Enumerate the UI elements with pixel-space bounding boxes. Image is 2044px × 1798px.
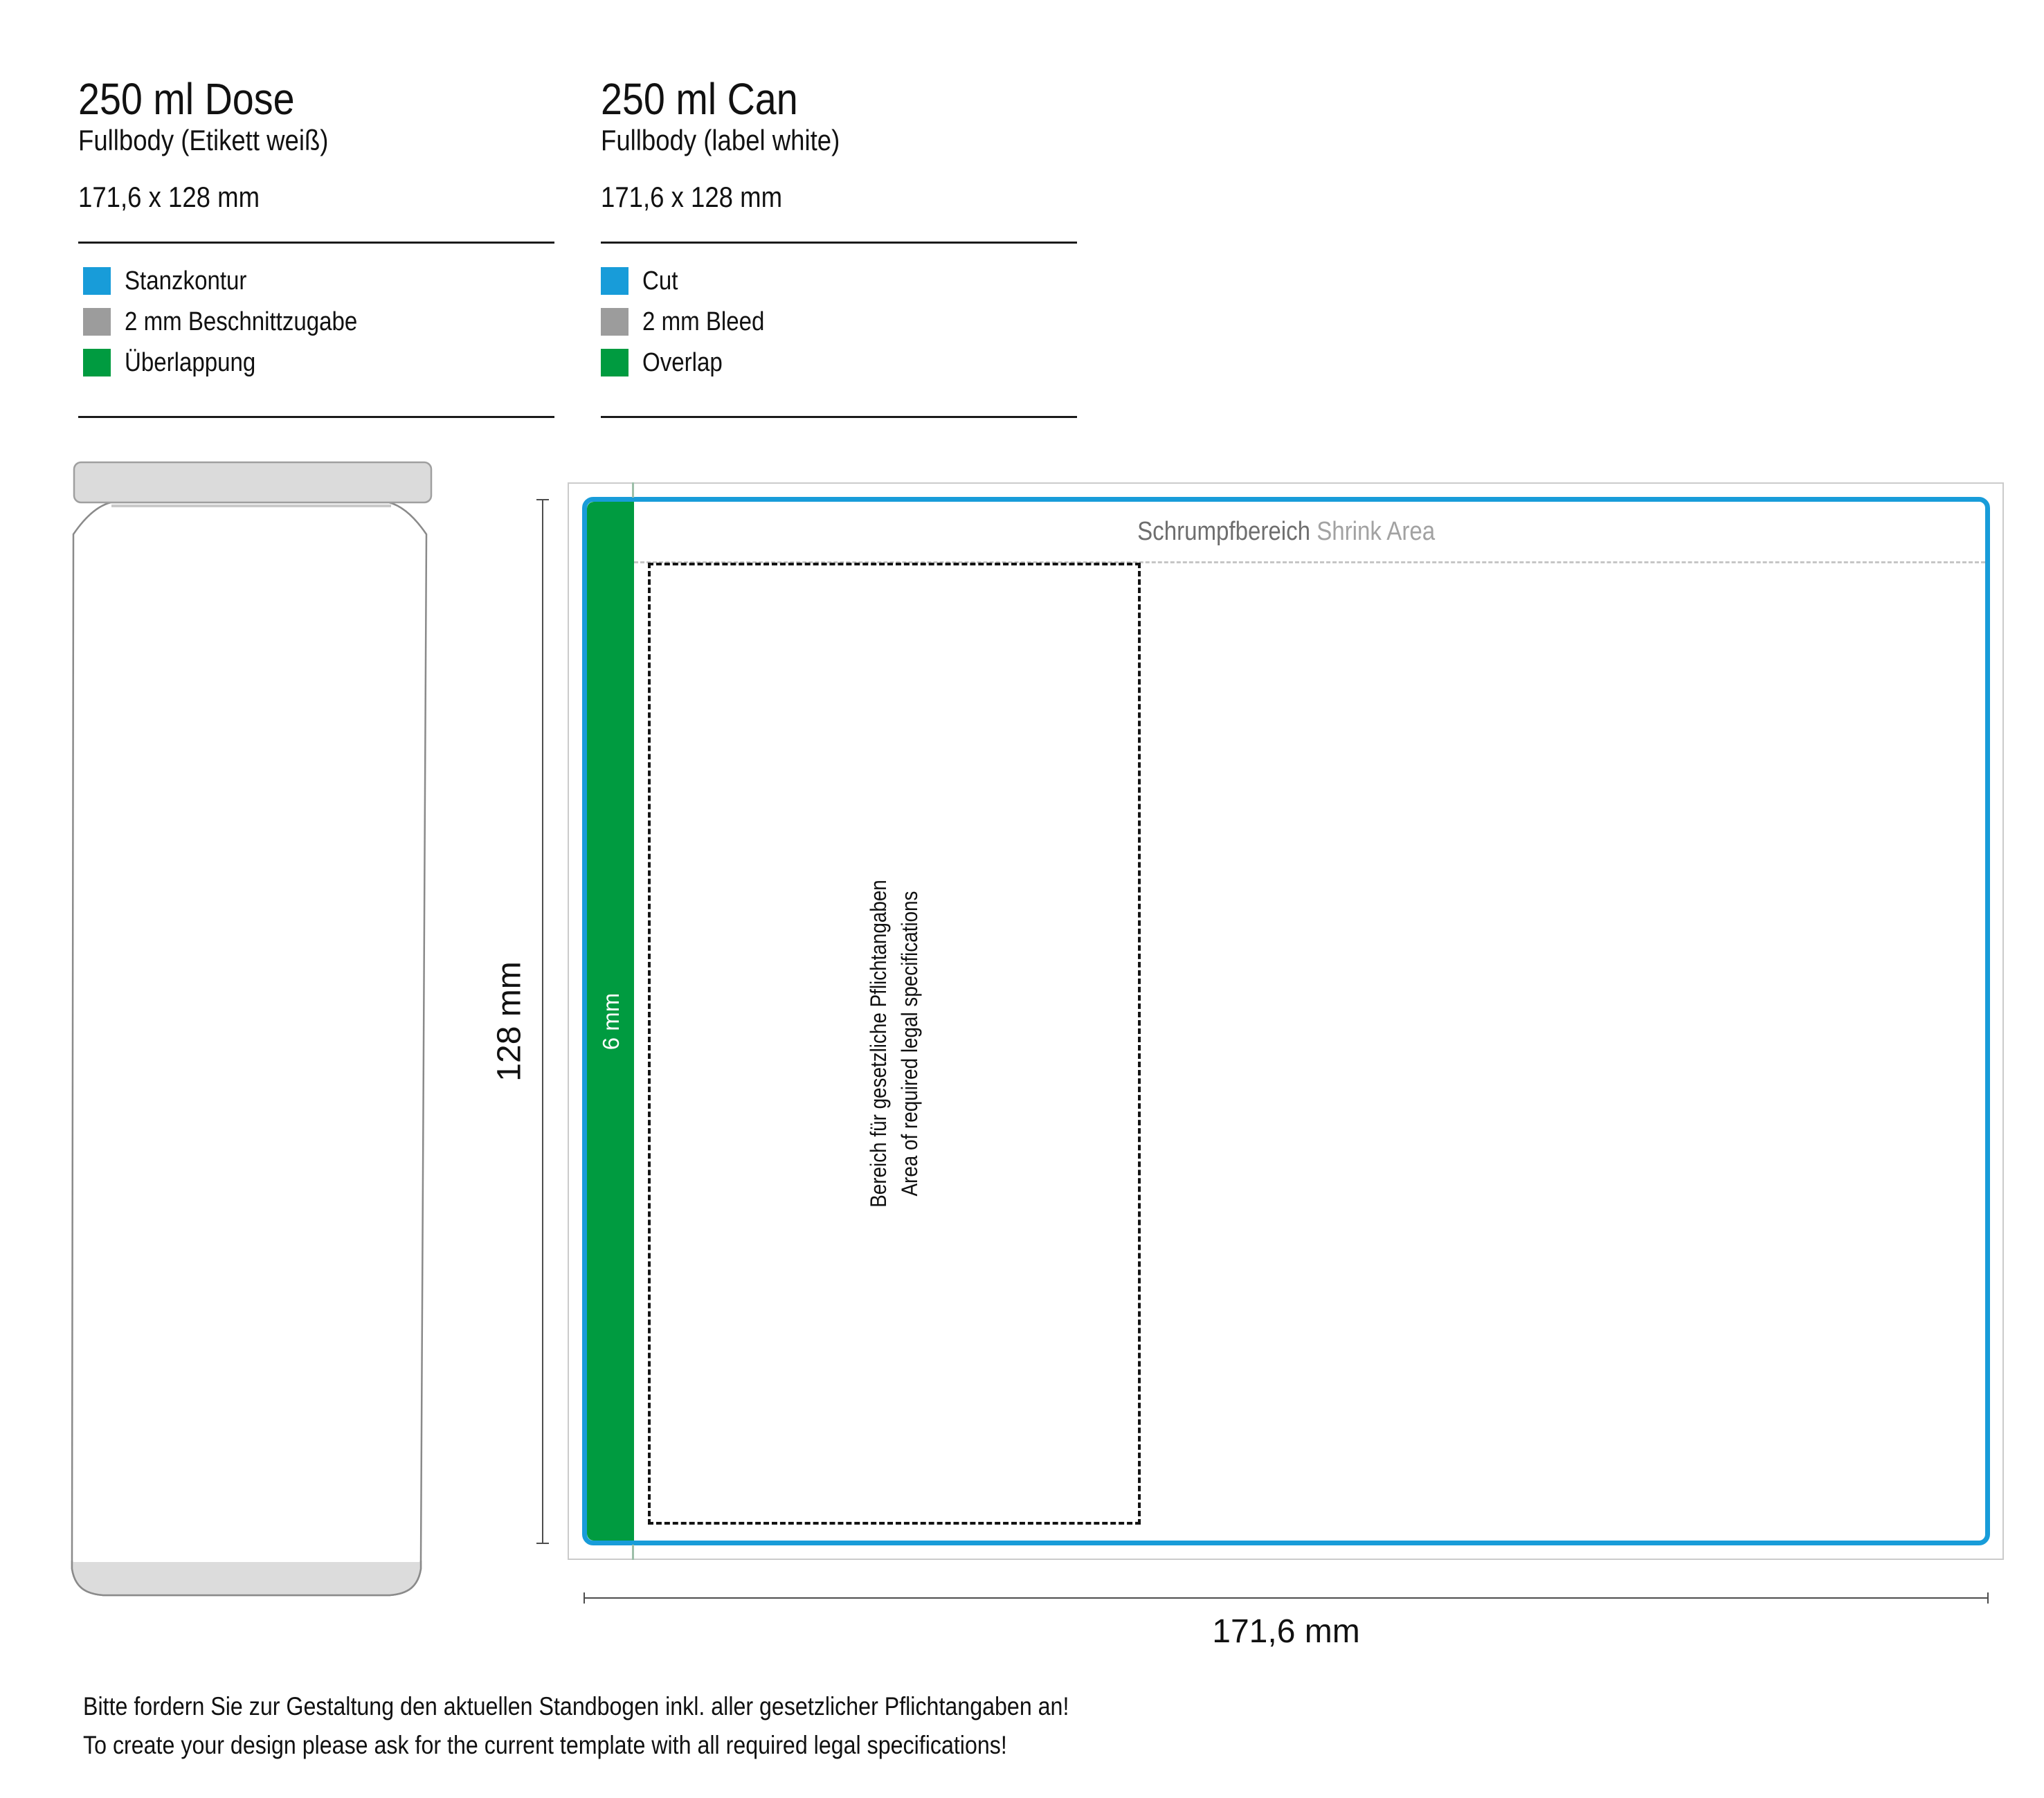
overlap-color-swatch (83, 349, 111, 376)
legend-item-cut: Cut (601, 267, 683, 295)
right-panel-divider-bottom (601, 416, 1077, 418)
width-dimension-tick-right (1987, 1592, 1989, 1604)
right-panel-title-text: 250 ml Can (601, 76, 798, 122)
legend-label: 2 mm Beschnittzugabe (125, 307, 357, 337)
height-dimension-tick-bottom (536, 1543, 549, 1544)
can-lid (74, 462, 431, 502)
legend-label: Cut (642, 266, 678, 296)
legend-label: 2 mm Bleed (642, 307, 764, 337)
left-panel-title-text: 250 ml Dose (78, 76, 295, 122)
legal-area-text-de: Bereich für gesetzliche Pflichtangaben (863, 880, 894, 1208)
right-panel-size: 171,6 x 128 mm (601, 181, 809, 213)
legal-area-text: Bereich für gesetzliche Pflichtangaben A… (863, 855, 925, 1232)
width-dimension-label: 171,6 mm (582, 1613, 1990, 1651)
legend-label: Overlap (642, 348, 723, 378)
left-panel-size-text: 171,6 x 128 mm (78, 181, 260, 213)
legend-item-ueberlappung: Überlappung (83, 349, 275, 376)
left-panel-subtitle: Fullbody (Etikett weiß) (78, 125, 365, 156)
right-panel-divider-top (601, 242, 1077, 244)
footer-note-en: To create your design please ask for the… (83, 1726, 1007, 1765)
can-bottom-band (71, 1562, 422, 1602)
cut-color-swatch (83, 267, 111, 295)
right-panel-title: 250 ml Can (601, 76, 827, 122)
footer-note: Bitte fordern Sie zur Gestaltung den akt… (83, 1687, 1216, 1765)
height-dimension-line (542, 500, 543, 1543)
page: 250 ml Dose Fullbody (Etikett weiß) 171,… (0, 0, 2044, 1798)
shrink-area-label-en: Shrink Area (1317, 517, 1435, 546)
width-dimension-line (584, 1597, 1989, 1599)
height-dimension-label: 128 mm (491, 961, 529, 1081)
left-panel-divider-top (78, 242, 554, 244)
legend-item-stanzkontur: Stanzkontur (83, 267, 265, 295)
legend-item-beschnittzugabe: 2 mm Beschnittzugabe (83, 308, 392, 336)
can-drawing (66, 453, 443, 1602)
shrink-area-label: Schrumpfbereich Shrink Area (582, 517, 1990, 547)
left-panel-size: 171,6 x 128 mm (78, 181, 287, 213)
left-panel-subtitle-text: Fullbody (Etikett weiß) (78, 125, 328, 156)
legend-item-bleed: 2 mm Bleed (601, 308, 783, 336)
right-panel-size-text: 171,6 x 128 mm (601, 181, 782, 213)
overlap-color-swatch (601, 349, 628, 376)
legend-label: Stanzkontur (125, 266, 246, 296)
overlap-width-label: 6 mm (598, 993, 624, 1051)
footer-note-de: Bitte fordern Sie zur Gestaltung den akt… (83, 1687, 1069, 1726)
cut-color-swatch (601, 267, 628, 295)
left-panel-divider-bottom (78, 416, 554, 418)
overlap-bleed-tick-top (632, 482, 634, 498)
height-dimension-tick-top (536, 499, 549, 500)
right-panel-subtitle-text: Fullbody (label white) (601, 125, 840, 156)
left-panel-title: 250 ml Dose (78, 76, 327, 122)
overlap-bleed-tick-bottom (632, 1545, 634, 1560)
bleed-color-swatch (601, 308, 628, 336)
legend-item-overlap: Overlap (601, 349, 734, 376)
width-dimension-tick-left (584, 1592, 585, 1604)
can-body-outline (72, 502, 426, 1595)
shrink-area-label-de: Schrumpfbereich (1137, 517, 1310, 546)
bleed-color-swatch (83, 308, 111, 336)
right-panel-subtitle: Fullbody (label white) (601, 125, 876, 156)
legal-area-text-en: Area of required legal specifications (894, 880, 925, 1208)
legend-label: Überlappung (125, 348, 255, 378)
